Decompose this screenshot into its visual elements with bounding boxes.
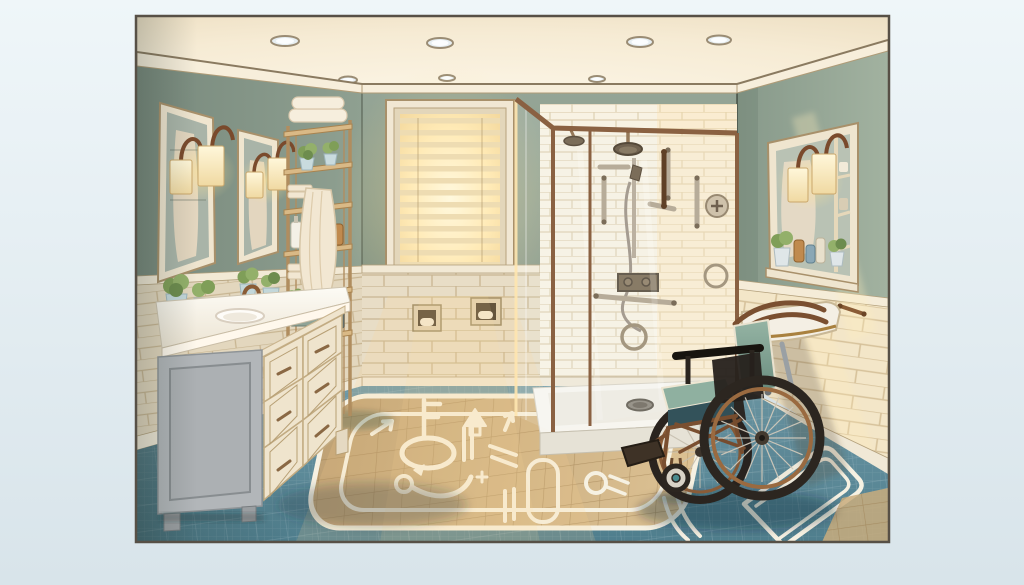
bathroom-illustration: Digital illustration of a wheelchair-acc… <box>0 0 1024 585</box>
vanity-shadow <box>277 483 467 527</box>
left-vignette <box>137 17 197 541</box>
shelf-top-towels <box>289 97 347 122</box>
rear-wheel-near <box>704 380 820 496</box>
illustration-frame: Digital illustration of a wheelchair-acc… <box>0 0 1024 585</box>
hanging-towel <box>300 188 336 294</box>
room-scene <box>137 17 888 546</box>
right-mirror-cabinet <box>766 123 858 292</box>
back-chair-rail <box>362 265 540 273</box>
window-glass <box>400 114 500 282</box>
shower-door-handle <box>661 149 667 209</box>
